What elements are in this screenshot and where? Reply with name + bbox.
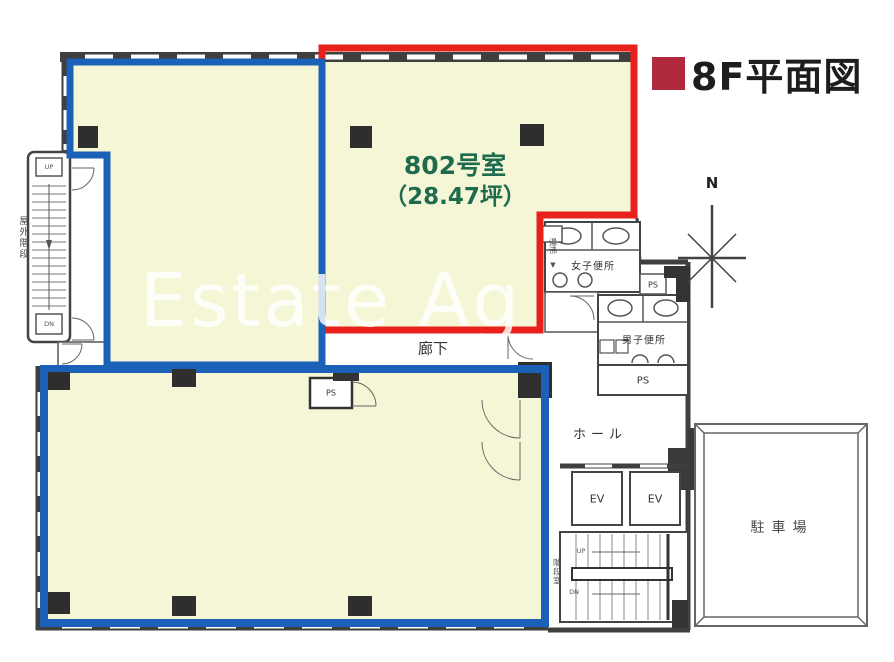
toilet-fixture	[603, 228, 629, 244]
ps-label-upper: PS	[648, 281, 658, 290]
stairwell-label: 階段室	[552, 559, 563, 586]
stairwell-down-label: DN	[569, 588, 579, 596]
floor-plan-page: Estate Ag 8F平面図 802号室 （28.47坪） 廊下 ホール 女子…	[0, 0, 894, 662]
door-arc-bottom	[72, 318, 94, 340]
page-title-text: 8F平面図	[691, 46, 862, 101]
mens-toilet-label: 男子便所	[622, 332, 666, 347]
compass-center	[709, 255, 715, 261]
unit-802-name: 802号室	[384, 150, 526, 183]
door-arc-top	[72, 168, 94, 190]
unit-802-label: 802号室 （28.47坪）	[384, 150, 526, 212]
elevator-1-label: EV	[590, 493, 604, 506]
unit-802-area: （28.47坪）	[384, 182, 526, 212]
hall-ev-stairs	[560, 428, 698, 628]
pillar	[48, 592, 70, 614]
stairwell-corner-block	[672, 600, 688, 628]
pillar	[172, 369, 196, 387]
annex-down-label: DN	[44, 320, 54, 328]
pillar	[520, 124, 544, 146]
page-title: 8F平面図	[652, 46, 862, 101]
sink-fixture	[553, 273, 567, 287]
parking-label: 駐車場	[751, 517, 814, 537]
title-accent-square-icon	[652, 57, 685, 90]
kitchenette-label: 湯沸	[548, 238, 559, 254]
pillar	[48, 372, 70, 390]
toilet-fixture	[654, 300, 678, 316]
compass-north-label: N	[706, 174, 719, 192]
womens-toilet-label: 女子便所	[571, 258, 615, 273]
outdoor-stairs-label: 屋外階段	[17, 216, 30, 260]
ps-label-lower: PS	[637, 376, 649, 387]
room-b-fill	[44, 369, 545, 623]
sink-fixture	[578, 273, 592, 287]
corridor-hall-door-arc	[508, 334, 533, 359]
pillar	[78, 126, 98, 148]
outdoor-staircase	[28, 152, 105, 368]
kitchenette-arrow: ▼	[550, 261, 555, 269]
pillar	[348, 596, 372, 616]
annex-up-label: UP	[45, 163, 54, 171]
ps-label-closet: PS	[326, 389, 336, 398]
hall-label: ホール	[573, 424, 627, 443]
corridor-label: 廊下	[418, 338, 448, 359]
toilet-fixture	[608, 300, 632, 316]
pillar	[350, 126, 372, 148]
toilet-anteroom	[545, 292, 598, 332]
elevator-2-label: EV	[648, 493, 662, 506]
toilet-block	[540, 222, 690, 395]
stair-landing-bar	[572, 568, 672, 580]
pillar	[172, 596, 196, 616]
stairwell-up-label: UP	[577, 547, 586, 555]
sink-box	[600, 340, 614, 353]
